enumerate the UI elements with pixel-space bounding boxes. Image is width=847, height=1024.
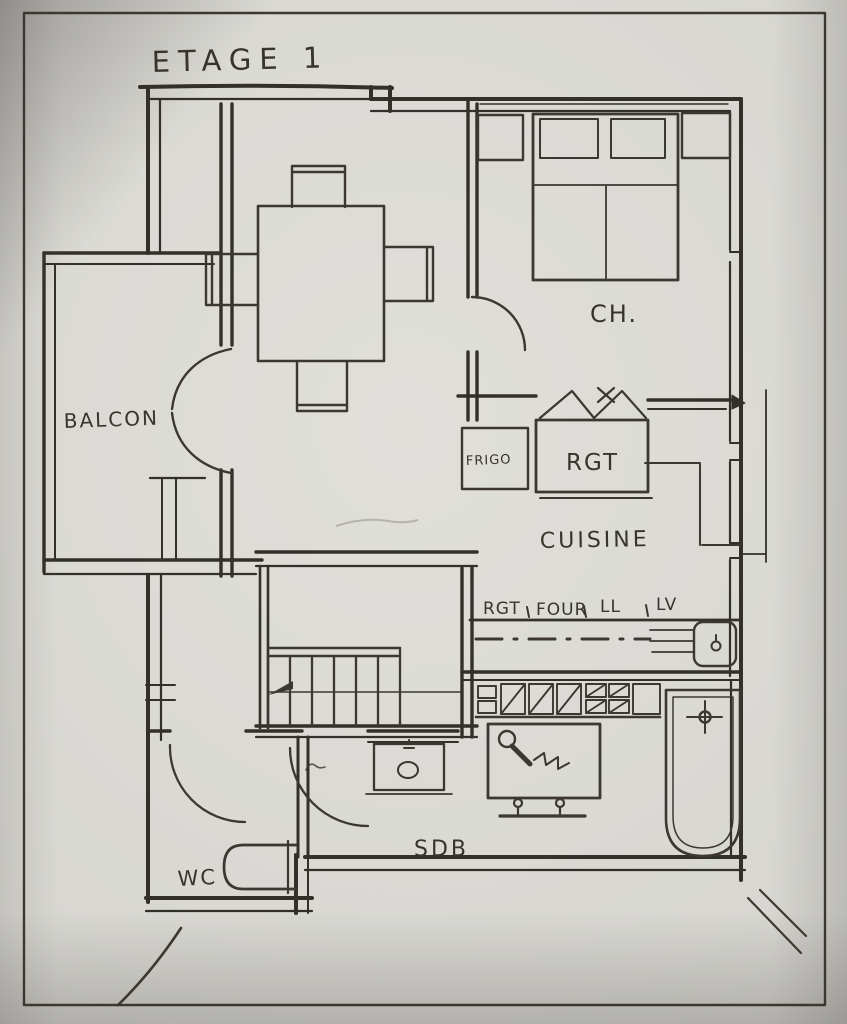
chair-right [384, 247, 433, 301]
exterior-walls [140, 86, 766, 913]
counter-appliance-labels: RGT FOUR LL LV [483, 595, 677, 620]
bathroom-cabinet [476, 684, 660, 717]
wc-door-arc [170, 745, 245, 822]
kitchen: FRIGO RGT CUISINE RGT FOUR LL LV [462, 388, 741, 666]
french-doors [172, 349, 231, 473]
photo-artifacts [118, 890, 806, 1005]
fridge-label: FRIGO [466, 452, 512, 469]
balcony-label: BALCON [63, 406, 159, 433]
storage-label: RGT [566, 450, 619, 476]
bathroom-door-arc [290, 748, 368, 826]
bedroom-door-arc [472, 297, 525, 350]
towel-rail [500, 799, 585, 816]
counter-label-rgt: RGT [483, 599, 521, 619]
bed-cover-line [533, 185, 678, 280]
wc-room: WC [170, 745, 296, 893]
faucet-icon [712, 642, 721, 651]
shower [488, 724, 600, 798]
bathtub [666, 690, 740, 856]
kitchen-label: CUISINE [540, 527, 650, 554]
chair-bottom [297, 361, 347, 411]
photographed-floor-plan: ETAGE 1 [0, 0, 847, 1024]
toilet [224, 841, 296, 893]
counter-east-edge [645, 463, 740, 545]
living-dining-room [206, 166, 433, 526]
counter-label-four: FOUR [536, 600, 587, 620]
bedroom: CH. [472, 113, 730, 350]
washbasin [366, 740, 452, 794]
nightstand-right [682, 113, 730, 158]
pillow-left [540, 119, 598, 158]
bifold-door-icon [540, 388, 646, 418]
chair-top [292, 166, 345, 207]
nightstand-left [478, 115, 523, 160]
hatch-marks [748, 890, 806, 953]
bathroom-label: SDB [414, 837, 469, 862]
balcony: BALCON [44, 253, 262, 574]
plan-title: ETAGE 1 [151, 40, 329, 79]
corner-stroke [118, 928, 181, 1005]
staircase [268, 648, 462, 726]
cross-tap-icon [687, 701, 722, 733]
wc-label: WC [177, 865, 218, 891]
bathroom: SDB [290, 684, 740, 862]
counter-label-lv: LV [656, 595, 677, 615]
bedroom-label: CH. [590, 300, 638, 328]
kitchen-sink [650, 622, 736, 666]
counter-label-ll: LL [600, 597, 621, 617]
pillow-right [611, 119, 665, 158]
dining-table [258, 206, 384, 361]
pencil-smudge [336, 520, 418, 526]
interior-walls [150, 100, 745, 857]
hand-shower-icon [499, 731, 569, 769]
